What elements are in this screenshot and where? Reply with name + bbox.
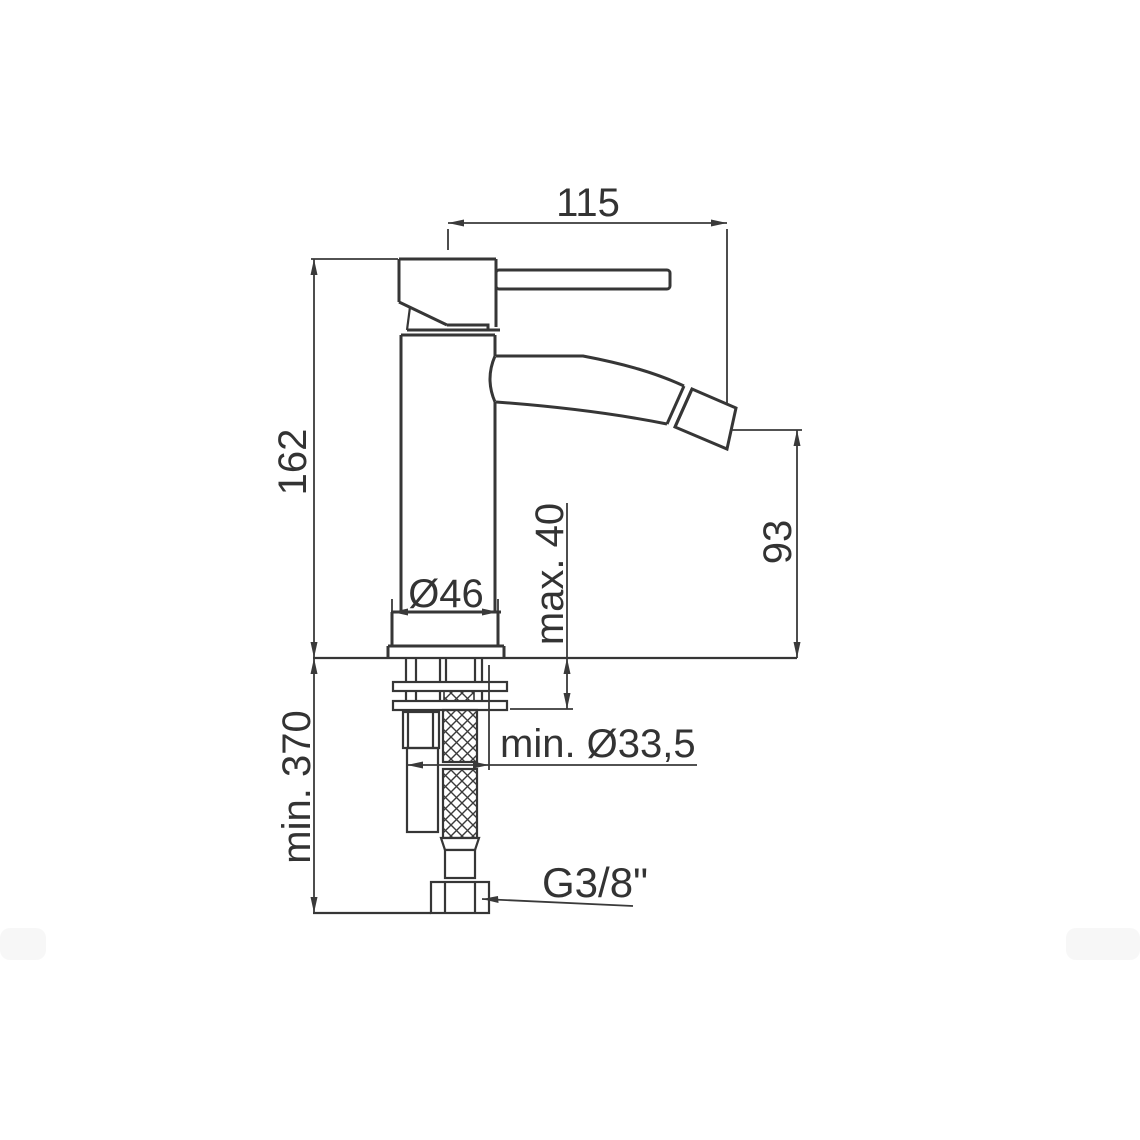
body-column	[401, 335, 495, 612]
dimension-min-370-label: min. 370	[275, 710, 319, 863]
arrowhead	[407, 762, 423, 769]
dimension-max-40-label: max. 40	[528, 503, 572, 645]
technical-drawing: 115 162 min. 370 93 max. 40 Ø46	[0, 0, 1140, 1140]
arrowhead	[448, 220, 464, 227]
left-hose-crimp-lines	[408, 712, 433, 748]
arrowhead	[564, 658, 571, 674]
supply-hoses	[313, 710, 489, 913]
dimension-min-370: min. 370	[275, 658, 319, 913]
hex-nut-outline	[431, 882, 489, 913]
arrowhead	[794, 430, 801, 446]
dimension-93-label: 93	[756, 520, 800, 565]
spout	[496, 356, 736, 449]
dimension-93: 93	[731, 430, 802, 658]
arrowhead	[711, 220, 727, 227]
braided-hose-upper	[443, 710, 477, 762]
mixer-head	[399, 259, 500, 330]
arrowhead	[473, 762, 489, 769]
dimension-162-label: 162	[271, 429, 315, 496]
dimension-115-label: 115	[556, 181, 620, 225]
arrowhead	[311, 658, 318, 674]
dimension-162: 162	[271, 259, 398, 658]
hose-braid-between-washers	[444, 691, 474, 701]
background-smudge-right	[1066, 928, 1140, 960]
arrowhead	[311, 642, 318, 658]
arrowhead	[794, 642, 801, 658]
braided-hose-lower	[443, 769, 477, 838]
callout-g38: G3/8"	[482, 859, 648, 906]
head-chamfer	[399, 302, 447, 325]
spout-top-edge	[496, 356, 684, 386]
dimension-min-diameter-33-5-label: min. Ø33,5	[500, 722, 696, 766]
background-smudge-left	[0, 928, 46, 960]
hose-end-cylinder	[445, 850, 475, 878]
arrowhead	[564, 693, 571, 709]
dimension-diameter-46-label: Ø46	[408, 572, 484, 616]
drawing-canvas: 115 162 min. 370 93 max. 40 Ø46	[0, 0, 1140, 1140]
spout-root-arc	[490, 356, 495, 402]
collar-left-edge	[407, 307, 410, 330]
arrowhead	[311, 259, 318, 275]
lever-handle	[496, 270, 670, 289]
hose-end-collar	[441, 838, 479, 850]
callout-g38-label: G3/8"	[542, 859, 648, 906]
arrowhead	[311, 897, 318, 913]
hex-nut	[431, 882, 489, 913]
dimension-max-40: max. 40	[510, 503, 573, 709]
base-flange	[388, 612, 504, 658]
left-hose-body	[407, 748, 438, 832]
flange-plate	[388, 646, 504, 658]
dimension-diameter-46: Ø46	[392, 572, 498, 616]
aerator-ring-line-1	[667, 386, 684, 424]
spout-bottom-edge	[496, 402, 667, 424]
